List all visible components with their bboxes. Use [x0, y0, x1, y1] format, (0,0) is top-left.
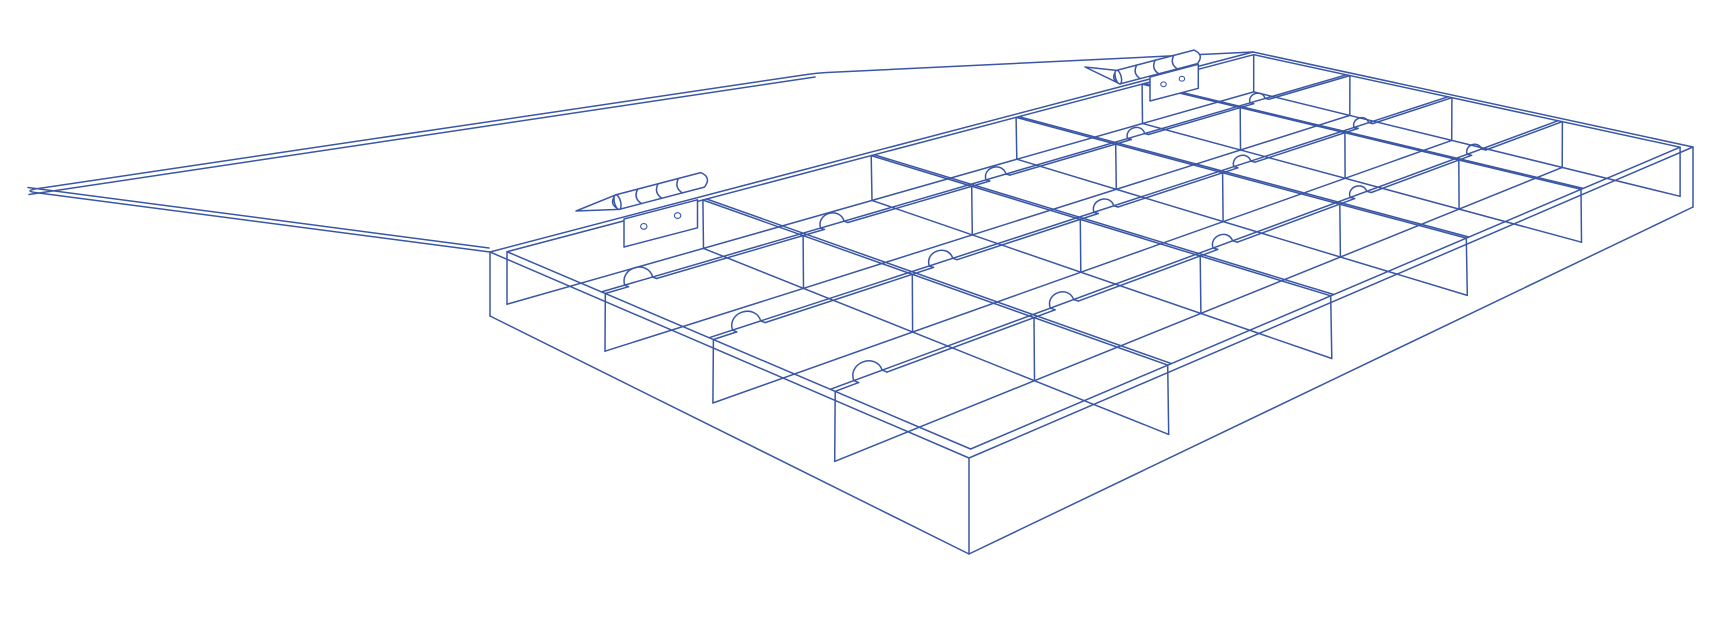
compartment-tray-drawing — [0, 0, 1734, 624]
box-shell — [490, 52, 1693, 554]
hinge-left — [576, 173, 707, 247]
floor-lines — [507, 55, 1680, 462]
illustration-canvas — [0, 0, 1734, 624]
divider-grid — [602, 75, 1584, 392]
